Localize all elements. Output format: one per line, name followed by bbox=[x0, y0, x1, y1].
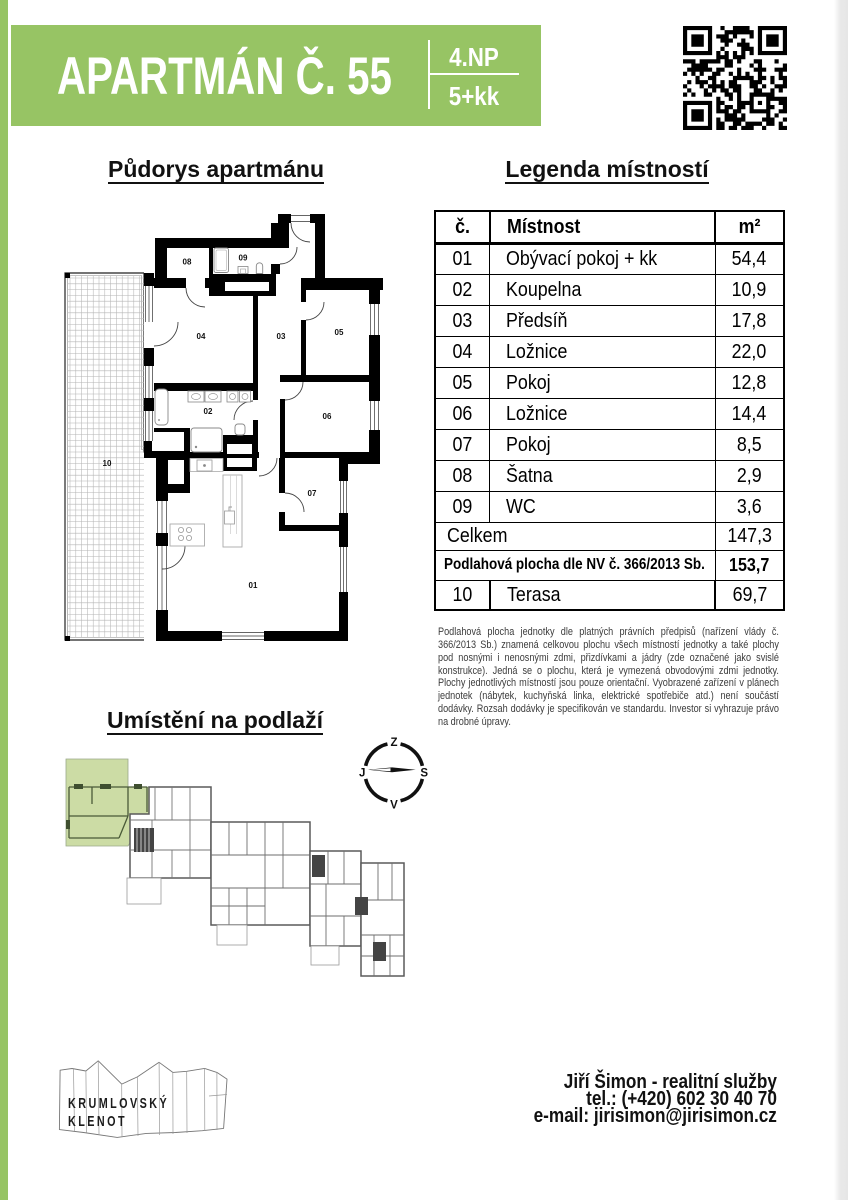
svg-text:01: 01 bbox=[249, 581, 258, 590]
svg-text:04: 04 bbox=[197, 332, 206, 341]
svg-text:06: 06 bbox=[323, 412, 332, 421]
svg-text:02: 02 bbox=[204, 407, 213, 416]
svg-text:03: 03 bbox=[277, 332, 286, 341]
svg-text:10: 10 bbox=[103, 459, 112, 468]
svg-text:08: 08 bbox=[183, 258, 192, 267]
svg-text:KRUMLOVSKÝ: KRUMLOVSKÝ bbox=[68, 1094, 169, 1111]
svg-text:09: 09 bbox=[239, 254, 248, 263]
svg-text:07: 07 bbox=[308, 489, 317, 498]
svg-text:Z: Z bbox=[390, 737, 397, 749]
svg-text:S: S bbox=[420, 768, 428, 780]
svg-text:KLENOT: KLENOT bbox=[68, 1112, 127, 1129]
svg-text:05: 05 bbox=[335, 328, 344, 337]
